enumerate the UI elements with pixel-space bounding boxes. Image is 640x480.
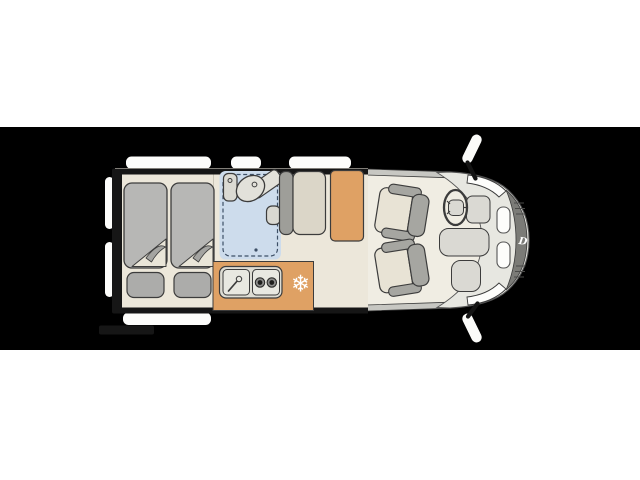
hood-vent-slot-bottom bbox=[497, 242, 510, 268]
pillow-left bbox=[127, 273, 164, 298]
steering-wheel-hub bbox=[449, 200, 464, 216]
instrument-cowl bbox=[467, 196, 491, 223]
kitchen-faucet-head bbox=[236, 276, 241, 281]
window-marker-rear-bottom bbox=[123, 313, 211, 326]
pillow-right bbox=[174, 273, 211, 298]
washbasin bbox=[224, 174, 238, 202]
glovebox bbox=[452, 261, 481, 292]
bathroom-door-grip bbox=[267, 206, 281, 225]
kitchen: ❄ bbox=[213, 262, 314, 311]
fridge-snowflake-icon: ❄ bbox=[291, 272, 310, 298]
shower-drain bbox=[254, 248, 257, 251]
campervan-floorplan-diagram: D bbox=[0, 0, 640, 480]
rear-wall bbox=[112, 169, 122, 314]
washbasin-tap bbox=[228, 179, 232, 183]
burner-right-center bbox=[269, 280, 274, 285]
window-marker-mid-top bbox=[231, 157, 261, 170]
bench-cushion bbox=[293, 172, 326, 235]
hood-vent-slot-top bbox=[497, 207, 510, 233]
center-console bbox=[440, 229, 490, 257]
table-wardrobe bbox=[331, 171, 364, 242]
floorplan-page: D bbox=[0, 0, 640, 480]
brand-logo-icon: D bbox=[517, 236, 528, 248]
bench-backrest bbox=[280, 172, 294, 235]
dinette bbox=[280, 171, 364, 242]
bathroom bbox=[220, 168, 284, 259]
rear-bumper-shadow bbox=[99, 326, 154, 335]
window-marker-rear-top bbox=[126, 157, 211, 170]
window-marker-front-top bbox=[289, 157, 351, 170]
burner-left-center bbox=[258, 280, 263, 285]
